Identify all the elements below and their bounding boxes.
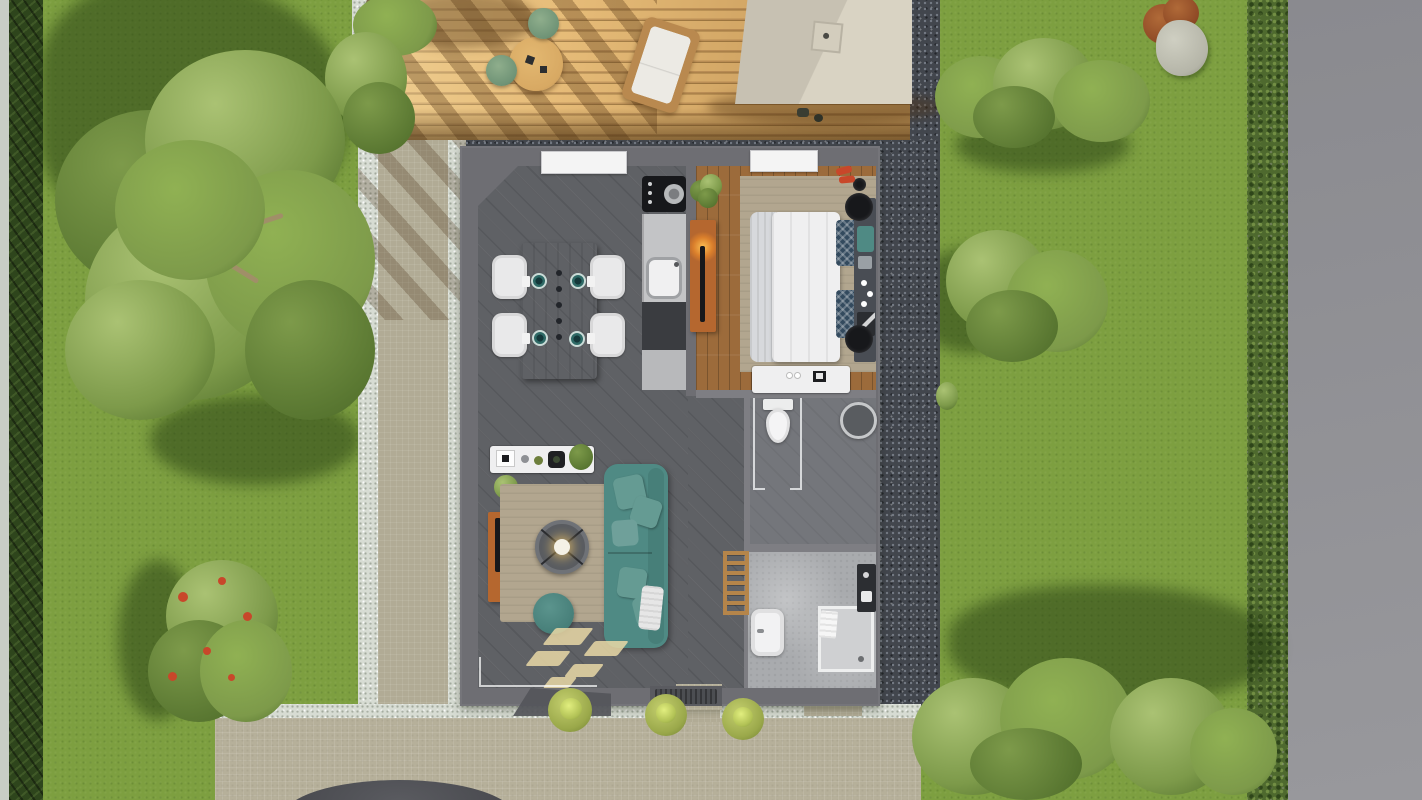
headboard-candle (867, 291, 873, 297)
boundary-hedge-left (9, 0, 43, 800)
vanity-dot (863, 572, 869, 578)
dresser-bottle (787, 373, 792, 378)
flower (203, 647, 211, 655)
towel (819, 610, 838, 638)
headboard-decor (858, 256, 872, 269)
coffee-table (535, 520, 589, 574)
sidewalk-strip (0, 0, 9, 800)
faucet-icon (674, 262, 679, 267)
foliage-blob (733, 707, 753, 727)
shrub (546, 686, 594, 736)
headboard-candle (861, 280, 867, 286)
bathroom-vanity (857, 564, 876, 612)
burner-dot (648, 200, 652, 204)
dresser-bottle (795, 373, 800, 378)
tv (700, 246, 705, 322)
burner-dot (648, 191, 652, 195)
towel-ladder (723, 551, 749, 615)
washbasin (840, 402, 877, 439)
flower (218, 577, 226, 585)
decor-disc (534, 456, 543, 465)
foliage-blob (65, 280, 215, 420)
flower (228, 674, 235, 681)
shower-tray (818, 606, 874, 672)
shrub (720, 696, 766, 742)
foliage-blob (245, 280, 375, 420)
tree (938, 222, 1113, 367)
bedside-stool (845, 325, 873, 353)
shower-partition (800, 398, 802, 490)
dining-chair (590, 313, 625, 357)
floorplan-render (0, 0, 1422, 800)
decor-box (497, 451, 514, 466)
flower (168, 672, 177, 681)
throw-blanket (638, 585, 664, 631)
bed-duvet (772, 212, 840, 362)
candle (554, 539, 570, 555)
deck-item (797, 108, 809, 117)
dining-chair (590, 255, 625, 299)
napkin (522, 333, 530, 344)
dining-table (521, 243, 597, 379)
candle (556, 270, 562, 276)
candle (556, 302, 562, 308)
burner-dot (648, 182, 652, 186)
window (750, 150, 818, 172)
foliage-blob (936, 382, 958, 410)
candle (556, 318, 562, 324)
headboard-cushion (857, 226, 874, 252)
window-frame-hint (479, 657, 597, 687)
sofa-seat-split (608, 552, 652, 554)
bistro-chair (528, 8, 559, 39)
shower-partition (753, 398, 755, 490)
plate (532, 330, 548, 346)
pergola-vent-icon (811, 21, 844, 54)
pergola-canopy (735, 0, 912, 104)
kitchen-counter (642, 350, 686, 390)
pot (664, 184, 684, 204)
hallway-floor (688, 396, 748, 688)
napkin (522, 276, 530, 287)
frame-inner (816, 373, 823, 379)
shrub (643, 692, 689, 738)
plate (570, 273, 586, 289)
vent-dot (823, 33, 830, 40)
grass-tuft (936, 382, 958, 410)
table-item (540, 66, 547, 73)
foliage-blob (966, 290, 1058, 362)
bathtub (751, 609, 784, 656)
foliage-blob (973, 86, 1055, 148)
rock (1156, 20, 1208, 76)
decor-tray-center (553, 456, 560, 463)
foliage-blob (698, 188, 718, 208)
window (541, 151, 627, 174)
deck-item (814, 114, 823, 122)
plate (569, 331, 585, 347)
photo-frame (813, 371, 826, 382)
partition-foot (790, 488, 802, 490)
tree (55, 50, 375, 430)
slippers (839, 175, 856, 183)
interior-wall (748, 544, 876, 552)
candle (556, 334, 562, 340)
sideboard (490, 446, 594, 473)
partition-foot (753, 488, 765, 490)
flowering-shrub (148, 552, 298, 732)
headboard-candle (861, 301, 867, 307)
bedside-stool (845, 193, 873, 221)
foliage-blob (560, 698, 582, 720)
plate (531, 273, 547, 289)
kitchen-cooktop (642, 176, 686, 212)
bistro-chair (486, 55, 517, 86)
foliage-blob (1190, 708, 1277, 795)
flower (178, 592, 188, 602)
foliage-blob (200, 620, 292, 722)
shower-drain-icon (858, 656, 864, 662)
foliage-blob (1053, 60, 1150, 142)
decor-box-inner (502, 455, 509, 462)
decor-disc (521, 455, 529, 463)
foliage-blob (569, 444, 593, 470)
sofa (604, 464, 668, 648)
foliage-blob (656, 703, 676, 723)
kitchen-base-cabinet (642, 302, 686, 350)
napkin (587, 333, 595, 344)
street-road (1288, 0, 1422, 800)
vanity-sink (861, 591, 872, 602)
dresser (752, 366, 850, 393)
bistro-table (509, 37, 563, 91)
foliage-blob (970, 728, 1082, 800)
tree-group (912, 650, 1277, 800)
cushion (611, 519, 639, 547)
napkin (587, 276, 595, 287)
flower (243, 612, 252, 621)
candle (556, 286, 562, 292)
tub-faucet (757, 629, 764, 633)
foliage-blob (115, 140, 265, 280)
bush-row (935, 38, 1150, 148)
kitchen-sink (646, 257, 682, 299)
potted-plant (690, 174, 724, 210)
decor-tray (548, 451, 565, 468)
